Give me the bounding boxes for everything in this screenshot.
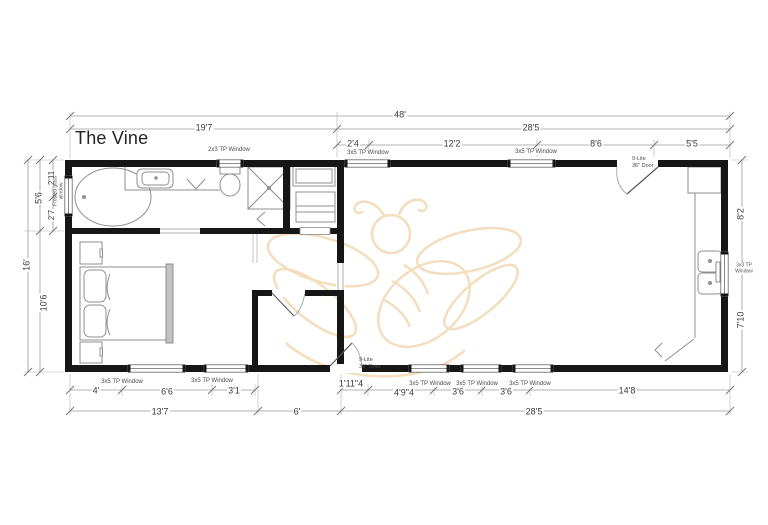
dim-top-right: 28'5 [522,124,541,133]
dim-top-seg-1: 2'4 [346,140,360,149]
back-door [330,343,362,373]
dim-left-window-below: 2'7 [48,209,56,221]
window-label-bottom-4: 3x5 TP Window [456,381,498,387]
kitchen-sink [698,251,722,294]
dim-top-seg-3: 8'6 [589,140,603,149]
dim-left-upper: 5'6 [35,191,44,205]
kitchen-window-label: 3x3 TP Window [730,264,758,275]
dim-bottom-seg-1: 4' [92,387,101,396]
dim-bottom-seg-7: 3'6 [499,388,513,397]
dim-right-upper: 8'2 [737,207,746,221]
dim-bottom-seg-5: 4'9"4 [393,389,415,398]
dim-left-lower: 10'6 [40,294,49,313]
dim-bottom-seg-4: 1'11"4 [338,380,364,389]
window-label-top-3: 3x5 TP Window [515,149,557,155]
window-label-bottom-5: 3x5 TP Window [509,381,551,387]
front-door-label-line1: 9-Lite [632,156,654,163]
window-label-bottom-2: 3x5 TP Window [191,378,233,384]
bed [80,264,173,343]
dim-overall-width: 48' [393,111,407,120]
dim-bottom-seg-6: 3'6 [451,388,465,397]
dim-bottom-seg-2: 6'6 [160,388,174,397]
window-label-top-2: 3x5 TP Window [347,150,389,156]
bee-watermark-icon [262,200,526,377]
back-door-label: 9-Lite 36" Door [359,357,381,370]
window-label-bottom-3: 3x5 TP Window [409,381,451,387]
toilet [220,167,240,196]
dim-top-left: 19'7 [195,124,214,133]
dim-top-seg-2: 12'2 [443,140,462,149]
dim-left-overall: 16' [23,258,32,272]
dim-top-seg-4: 5'5 [685,140,699,149]
front-door-label: 9-Lite 36" Door [632,156,654,169]
dim-bottom-seg-3: 3'1 [227,387,241,396]
front-door-label-line2: 36" Door [632,163,654,170]
linen-closet-shelves [293,166,335,222]
bathroom-vanity-sink [125,167,220,190]
floor-plan-drawing [0,0,768,525]
dim-bottom-total-mid: 6' [293,408,302,417]
tub-window-label: Frosted glass window [54,175,65,207]
dim-bottom-total-left: 13'7 [151,408,170,417]
window-label-top-1: 2x3 TP Window [208,147,250,153]
dim-bottom-total-right: 28'5 [525,408,544,417]
plan-title: The Vine [75,128,148,149]
window-label-bottom-1: 3x5 TP Window [101,379,143,385]
dim-right-lower: 7'10 [737,311,746,330]
back-door-label-line2: 36" Door [359,364,381,371]
dim-bottom-seg-8: 14'8 [618,387,637,396]
back-door-label-line1: 9-Lite [359,357,381,364]
floor-plan-canvas: The Vine 48' 19'7 28'5 2'4 12'2 8'6 5'5 … [0,0,768,525]
